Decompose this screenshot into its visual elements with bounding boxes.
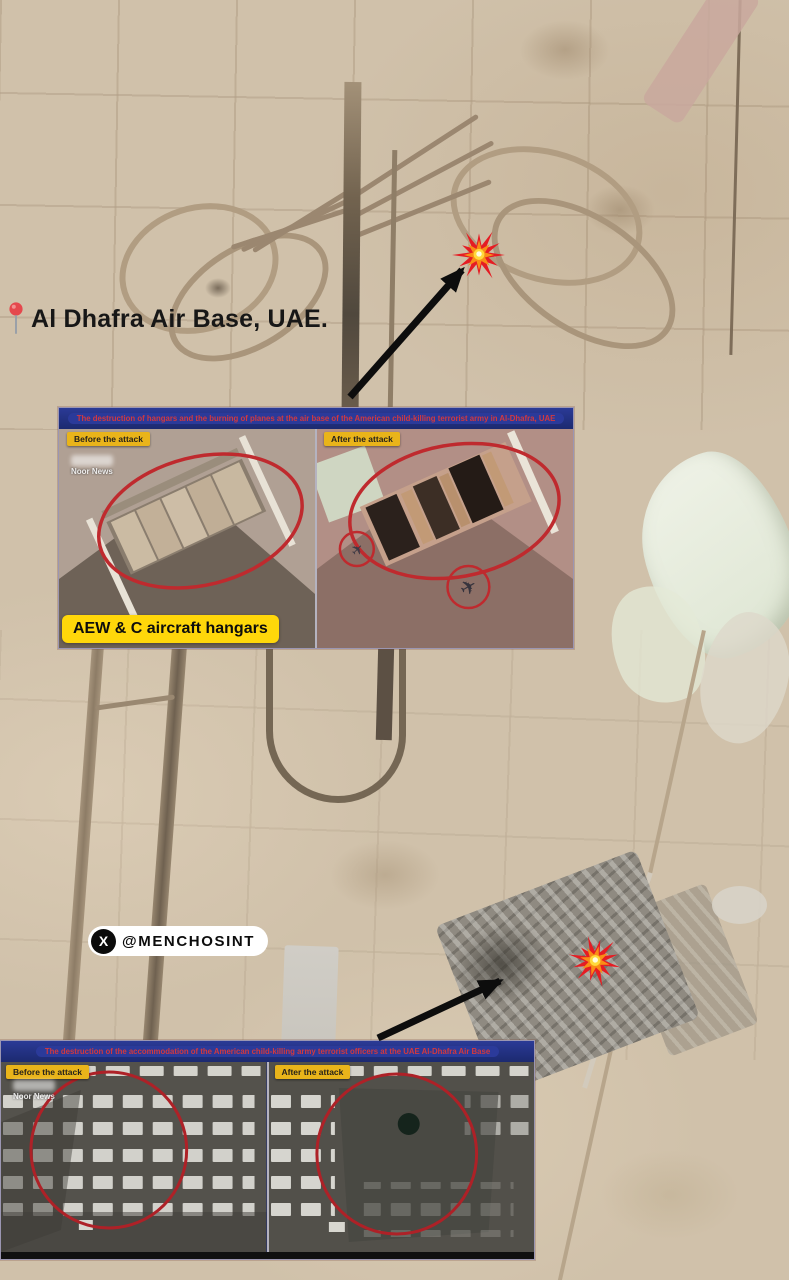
title-text: Al Dhafra Air Base, UAE.	[31, 305, 328, 334]
source-watermark: Noor News	[71, 455, 113, 476]
before-attack-tag: Before the attack	[6, 1065, 89, 1079]
watermark-handle-text: @MENCHOSINT	[122, 933, 255, 950]
hangars-caption: AEW & C aircraft hangars	[62, 615, 279, 643]
comparison-images: Before the attack Noor News	[1, 1062, 534, 1259]
panel-header-text: The destruction of hangars and the burni…	[68, 413, 565, 424]
after-image: After the attack	[267, 1062, 535, 1252]
after-hangars-scene: ✈ ✈	[317, 429, 573, 648]
annotated-satellite-image: Al Dhafra Air Base, UAE. The destruction…	[0, 0, 789, 1280]
main-runway	[342, 82, 362, 414]
after-accommodation-scene	[269, 1062, 535, 1252]
explosion-burst-icon	[452, 228, 506, 282]
white-buildings-cluster	[712, 886, 767, 924]
before-image: Before the attack Noor News	[1, 1062, 267, 1252]
before-after-panel-hangars: The destruction of hangars and the burni…	[58, 407, 574, 649]
panel-banner: The destruction of the accommodation of …	[1, 1041, 534, 1062]
terrain-patch	[600, 1150, 740, 1240]
panel-banner: The destruction of hangars and the burni…	[59, 408, 573, 429]
before-after-panel-accommodation: The destruction of the accommodation of …	[0, 1040, 535, 1260]
terrain-patch	[330, 840, 440, 910]
page-title: Al Dhafra Air Base, UAE.	[8, 302, 328, 336]
panel-header-text: The destruction of the accommodation of …	[36, 1046, 499, 1057]
after-attack-tag: After the attack	[275, 1065, 351, 1079]
source-watermark: Noor News	[13, 1080, 55, 1101]
terrain-patch	[520, 20, 610, 80]
watermark-handle: X @MENCHOSINT	[88, 926, 268, 956]
x-logo-icon: X	[91, 929, 116, 954]
after-attack-tag: After the attack	[324, 432, 400, 446]
impact-crater	[397, 1113, 419, 1135]
after-image: ✈ ✈ After the attack	[315, 429, 573, 648]
red-pin-icon	[8, 302, 24, 336]
before-attack-tag: Before the attack	[67, 432, 150, 446]
taxiway-u-loop	[266, 644, 406, 803]
